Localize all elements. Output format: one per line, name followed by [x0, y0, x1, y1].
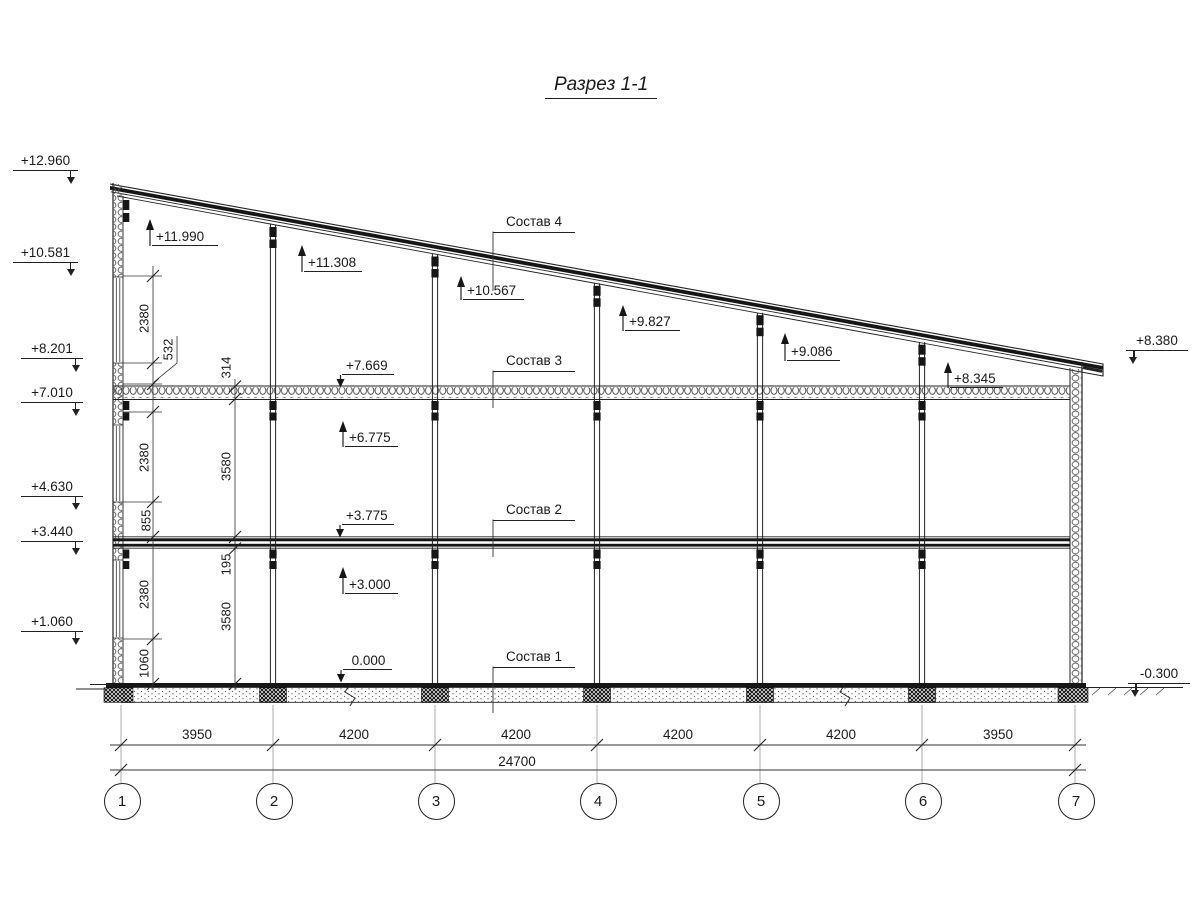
- dim-vertical: 2380: [136, 560, 153, 630]
- left-wall: [113, 183, 129, 688]
- elevation-mark-left: +10.581: [13, 244, 78, 263]
- level-mark: +11.990: [152, 228, 218, 246]
- level-mark: +6.775: [345, 429, 398, 447]
- elevation-mark-left: +1.060: [21, 613, 83, 632]
- layer-label: Состав 3: [493, 352, 575, 372]
- roof: [110, 184, 1103, 377]
- axis-bubble: 7: [1058, 783, 1095, 820]
- section-linework: [0, 0, 1200, 900]
- dim-vertical: 532: [160, 315, 177, 385]
- axis-bubble: 4: [580, 783, 617, 820]
- dim-vertical: 2380: [136, 284, 153, 354]
- layer-label: Состав 4: [493, 213, 575, 233]
- dim-span: 4200: [481, 726, 551, 743]
- level-mark: +10.567: [463, 282, 524, 300]
- right-wall: [1070, 362, 1082, 688]
- level-mark: +11.308: [304, 254, 362, 272]
- ground-slab: [76, 683, 1183, 706]
- dim-vertical: 3580: [218, 432, 235, 502]
- dim-span: 4200: [643, 726, 713, 743]
- level-mark: +9.086: [787, 343, 840, 361]
- axis-bubble: 2: [256, 783, 293, 820]
- level-mark-arrows: [146, 219, 952, 683]
- elevation-mark-left: +8.201: [21, 340, 83, 359]
- axis-bubble: 1: [104, 783, 141, 820]
- layer-label: Состав 2: [493, 501, 575, 521]
- drawing-title: Разрез 1-1: [545, 74, 657, 99]
- bottom-dims: [110, 705, 1086, 783]
- elevation-mark-right: +8.380: [1126, 332, 1188, 351]
- columns: [269, 225, 925, 684]
- level-mark: +3.775: [342, 507, 394, 525]
- level-mark: +7.669: [342, 357, 394, 375]
- dim-span: 3950: [963, 726, 1033, 743]
- axis-bubble: 5: [743, 783, 780, 820]
- dim-vertical: 2380: [136, 423, 153, 493]
- dim-vertical: 3580: [218, 582, 235, 652]
- middle-slab: [113, 537, 1070, 548]
- level-mark: 0.000: [343, 652, 392, 670]
- elevation-mark-left: +12.960: [13, 152, 78, 171]
- dim-vertical: 1060: [136, 629, 153, 699]
- dim-vertical: 855: [138, 486, 155, 556]
- axis-bubble: 6: [905, 783, 942, 820]
- dim-span: 4200: [806, 726, 876, 743]
- axis-bubble: 3: [418, 783, 455, 820]
- elevation-mark-left: +7.010: [21, 384, 83, 403]
- elevation-mark-right: -0.300: [1128, 665, 1190, 684]
- layer-label: Состав 1: [493, 648, 575, 668]
- level-mark: +3.000: [345, 576, 398, 594]
- section-drawing-sheet: Разрез 1-1 +12.960 +10.581 +8.201 +7.010…: [0, 0, 1200, 900]
- level-mark: +8.345: [950, 370, 1003, 388]
- level-mark: +9.827: [625, 313, 680, 331]
- dim-span: 3950: [162, 726, 232, 743]
- dim-total: 24700: [482, 753, 552, 770]
- elevation-mark-left: +3.440: [21, 523, 83, 542]
- elevation-mark-left: +4.630: [21, 478, 83, 497]
- dim-span: 4200: [319, 726, 389, 743]
- upper-slab: [113, 386, 1070, 400]
- dim-vertical: 314: [218, 333, 235, 403]
